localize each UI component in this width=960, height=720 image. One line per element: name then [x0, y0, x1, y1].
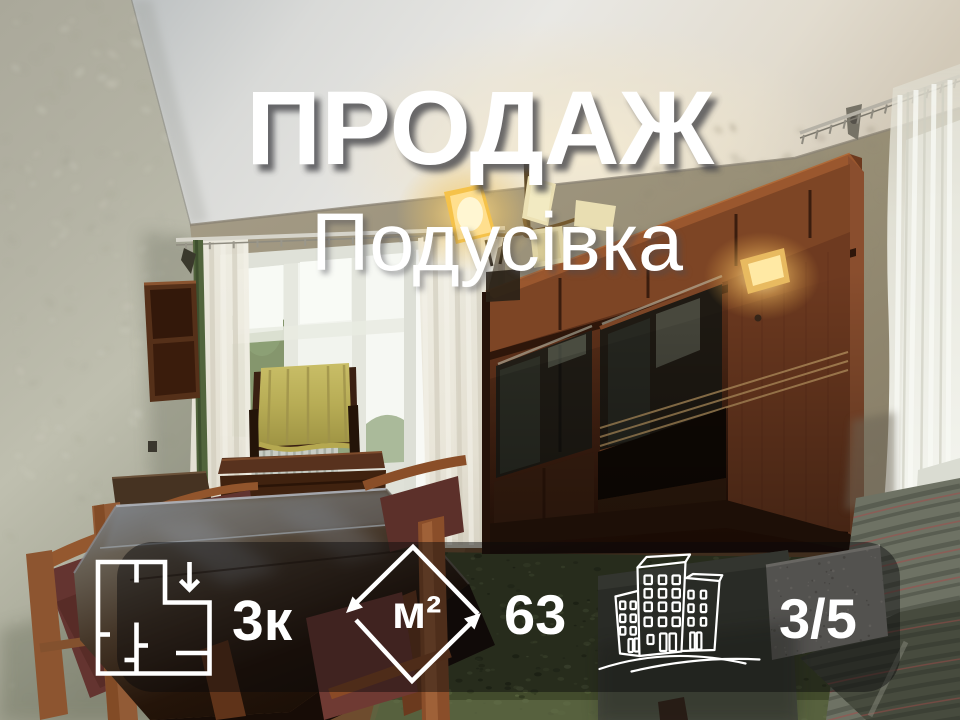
- svg-text:ПРОДАЖ: ПРОДАЖ: [246, 70, 715, 187]
- svg-text:3к: 3к: [232, 589, 293, 653]
- svg-text:3/5: 3/5: [779, 587, 857, 650]
- svg-text:Подусівка: Подусівка: [311, 197, 683, 288]
- svg-text:м²: м²: [392, 586, 441, 638]
- svg-text:63: 63: [504, 583, 566, 646]
